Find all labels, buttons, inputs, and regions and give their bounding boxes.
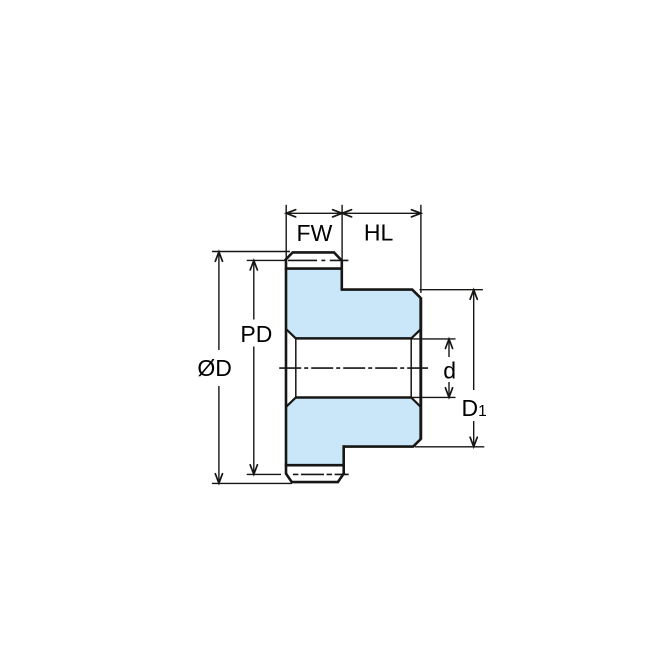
svg-text:PD: PD <box>240 321 272 347</box>
svg-text:d: d <box>443 357 456 383</box>
svg-text:HL: HL <box>364 220 394 246</box>
svg-text:ØD: ØD <box>197 355 232 381</box>
svg-text:FW: FW <box>297 220 333 246</box>
